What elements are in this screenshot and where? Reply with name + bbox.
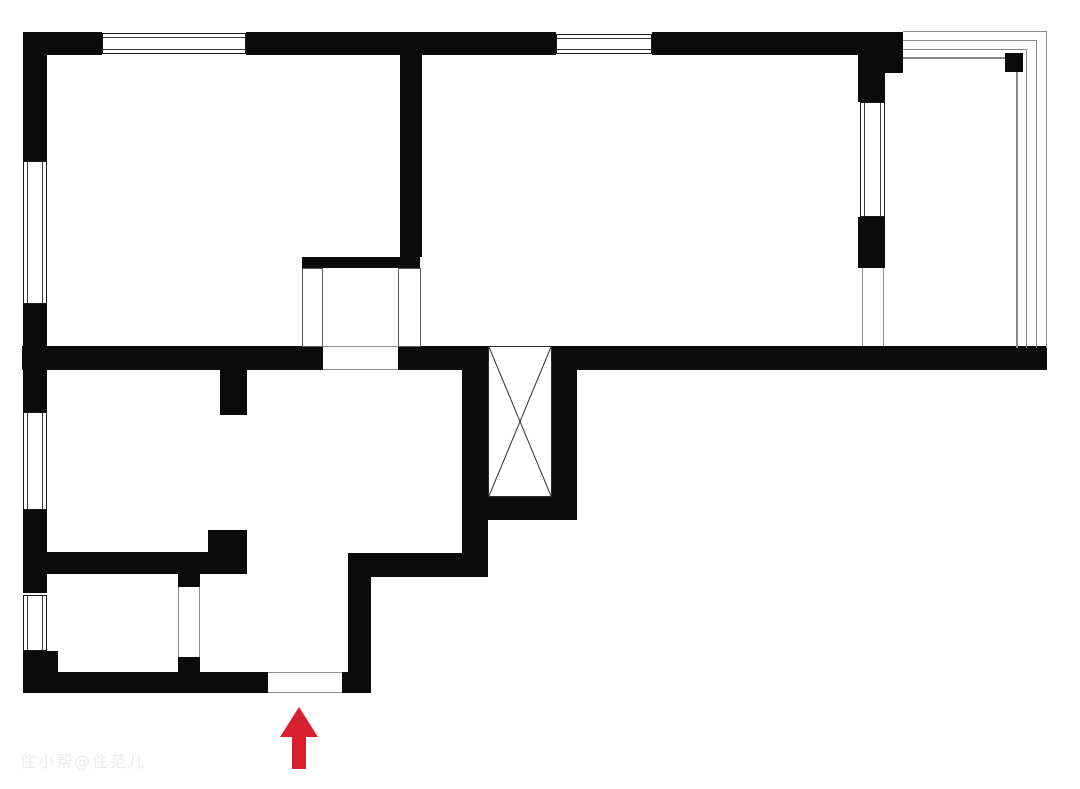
window-glass-lines: [27, 162, 43, 303]
wall-segment: [858, 73, 885, 102]
window-glass-lines: [103, 37, 245, 50]
watermark: 住小帮@住范儿: [20, 748, 146, 772]
wall-segment: [398, 346, 462, 370]
wall-segment: [23, 672, 268, 693]
wall-segment: [23, 32, 47, 161]
door-opening: [862, 268, 884, 346]
wall-segment: [652, 32, 903, 55]
wall-segment: [552, 346, 577, 520]
entrance-arrow-shaft: [292, 737, 306, 769]
opening-edge-line: [323, 346, 398, 347]
balcony-glazing-line-h: [903, 49, 1027, 50]
wall-segment: [22, 346, 323, 370]
window-symbol: [23, 412, 47, 510]
window-symbol: [556, 34, 652, 54]
window-symbol: [23, 595, 47, 651]
window-glass-lines: [27, 596, 43, 650]
wall-segment: [246, 32, 556, 55]
window-glass-lines: [864, 103, 881, 216]
floor-plan: 住小帮@住范儿: [0, 0, 1080, 789]
balcony-glazing-line-v: [1036, 40, 1037, 348]
light-partition: [398, 268, 421, 347]
flue-shaft: [488, 346, 552, 497]
shaft-cross-icon: [489, 347, 551, 496]
wall-segment: [23, 552, 247, 574]
wall-segment: [342, 672, 370, 693]
wall-segment: [462, 346, 488, 576]
window-symbol: [860, 102, 885, 217]
balcony-glazing-line-v: [1046, 31, 1047, 348]
wall-segment: [488, 497, 577, 520]
window-symbol: [102, 33, 246, 54]
balcony-glazing-line-h: [903, 57, 1018, 59]
wall-segment: [400, 55, 422, 257]
door-opening: [178, 587, 200, 657]
wall-segment: [220, 370, 247, 415]
window-glass-lines: [557, 38, 651, 50]
balcony-glazing-line-h: [903, 40, 1037, 41]
entrance-arrow: [280, 707, 318, 737]
structural-column: [1005, 53, 1023, 72]
wall-segment: [302, 257, 420, 268]
balcony-glazing-line-h: [903, 31, 1047, 32]
wall-segment: [178, 657, 200, 672]
wall-segment: [47, 651, 58, 672]
light-partition: [302, 268, 323, 347]
wall-segment: [858, 217, 885, 268]
wall-segment: [577, 346, 1047, 370]
door-opening: [268, 672, 342, 693]
wall-segment: [178, 574, 200, 587]
window-glass-lines: [27, 413, 43, 509]
balcony-glazing-line-v: [1026, 49, 1027, 348]
window-symbol: [23, 161, 47, 304]
balcony-glazing-line-v: [1016, 57, 1018, 348]
wall-segment: [858, 55, 903, 73]
opening-edge-line: [323, 369, 398, 370]
